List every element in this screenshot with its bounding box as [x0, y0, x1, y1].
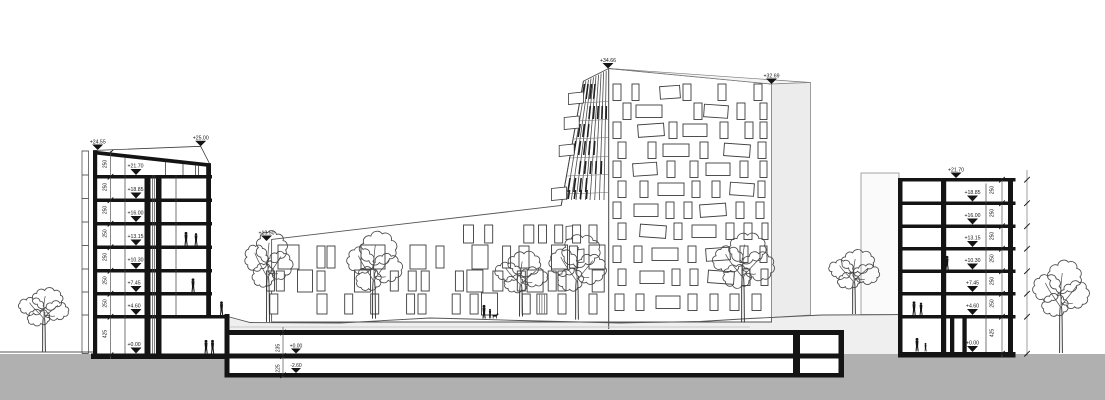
svg-text:+18.85: +18.85	[964, 190, 980, 196]
svg-text:+13.50: +13.50	[258, 230, 274, 236]
svg-text:250: 250	[990, 232, 996, 241]
svg-text:250: 250	[103, 276, 109, 285]
svg-text:425: 425	[990, 329, 996, 338]
svg-text:+7.45: +7.45	[128, 281, 141, 287]
svg-text:+4.60: +4.60	[128, 304, 141, 310]
svg-text:+13.15: +13.15	[964, 236, 980, 242]
svg-text:250: 250	[103, 229, 109, 238]
svg-text:250: 250	[103, 253, 109, 262]
svg-text:250: 250	[990, 254, 996, 263]
svg-text:+10.30: +10.30	[964, 258, 980, 264]
svg-text:250: 250	[990, 299, 996, 308]
svg-text:250: 250	[103, 206, 109, 215]
svg-text:+18.85: +18.85	[128, 187, 144, 193]
svg-text:250: 250	[103, 183, 109, 192]
svg-text:+16.00: +16.00	[964, 213, 980, 219]
svg-text:+0.00: +0.00	[128, 342, 141, 348]
svg-text:250: 250	[990, 209, 996, 218]
svg-text:+7.45: +7.45	[966, 281, 979, 287]
svg-text:+24.55: +24.55	[90, 139, 106, 145]
svg-text:-2.60: -2.60	[290, 363, 302, 369]
svg-text:250: 250	[103, 299, 109, 308]
svg-text:225: 225	[276, 364, 282, 373]
svg-text:+21.70: +21.70	[128, 164, 144, 170]
svg-text:+16.00: +16.00	[128, 211, 144, 217]
svg-text:425: 425	[103, 330, 109, 339]
svg-text:250: 250	[990, 186, 996, 195]
svg-text:+34.66: +34.66	[600, 58, 616, 64]
svg-text:250: 250	[990, 277, 996, 286]
svg-text:235: 235	[276, 344, 282, 353]
svg-text:+25.00: +25.00	[193, 136, 209, 142]
svg-text:+0.00: +0.00	[290, 343, 303, 349]
svg-text:+10.30: +10.30	[128, 258, 144, 264]
svg-text:+13.15: +13.15	[128, 234, 144, 240]
svg-text:+21.70: +21.70	[948, 167, 964, 173]
svg-text:+0.00: +0.00	[966, 341, 979, 347]
svg-text:+4.60: +4.60	[966, 304, 979, 310]
svg-text:+32.69: +32.69	[763, 73, 779, 79]
svg-text:250: 250	[103, 160, 109, 169]
